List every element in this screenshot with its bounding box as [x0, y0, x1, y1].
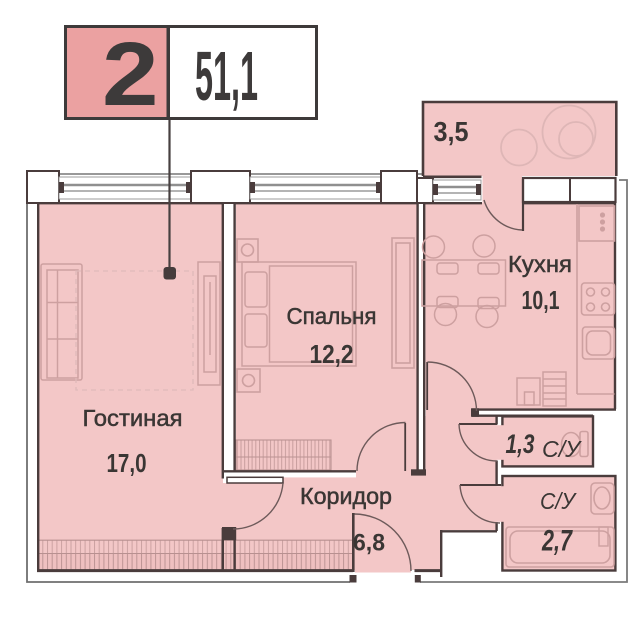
svg-text:Кухня: Кухня — [508, 251, 572, 277]
svg-text:12,2: 12,2 — [310, 339, 354, 369]
svg-text:С/У: С/У — [540, 488, 577, 514]
svg-text:Гостиная: Гостиная — [83, 405, 183, 431]
svg-text:1,3: 1,3 — [506, 429, 535, 459]
svg-text:51,1: 51,1 — [195, 37, 258, 115]
svg-text:Коридор: Коридор — [300, 483, 392, 509]
svg-text:2,7: 2,7 — [541, 525, 573, 558]
svg-text:10,1: 10,1 — [522, 285, 560, 315]
svg-text:17,0: 17,0 — [107, 448, 147, 478]
svg-text:2: 2 — [102, 24, 159, 124]
svg-text:6,8: 6,8 — [353, 530, 385, 557]
svg-text:3,5: 3,5 — [434, 116, 469, 147]
svg-text:Спальня: Спальня — [287, 303, 377, 329]
svg-text:С/У: С/У — [542, 436, 582, 462]
